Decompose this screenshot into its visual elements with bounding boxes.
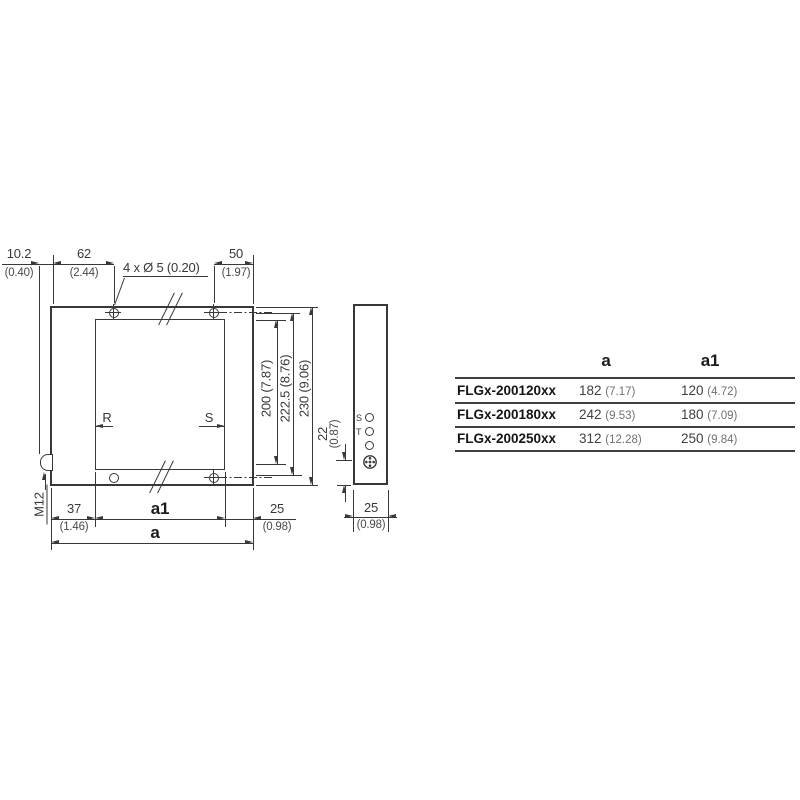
arrowhead xyxy=(309,307,313,315)
extension-line xyxy=(256,475,302,476)
dim-line xyxy=(293,313,294,475)
model-name: FLGx-200180xx xyxy=(457,407,556,422)
dim-left-margin-mm: 37 xyxy=(56,502,92,515)
arrowhead xyxy=(290,313,294,321)
hole-centerline-v xyxy=(213,304,214,320)
dim-offset-in: (0.40) xyxy=(0,267,38,279)
dim-line xyxy=(312,307,313,485)
mounting-hole-top-left xyxy=(109,308,119,318)
receiver-arrowhead xyxy=(95,424,103,428)
value-a1: 120 (4.72) xyxy=(681,383,737,398)
table-rule xyxy=(455,377,795,379)
extension-line xyxy=(114,266,115,303)
extension-line xyxy=(53,255,54,304)
table-header-a1: a1 xyxy=(684,352,736,369)
dim-depth-mm: 25 xyxy=(353,501,389,514)
value-a: 242 (9.53) xyxy=(579,407,635,422)
model-name: FLGx-200250xx xyxy=(457,431,556,446)
dim-total-height: 230 (9.06) xyxy=(298,329,311,449)
dim-connector-offset-mm: 22 xyxy=(316,404,329,464)
value-a1-mm: 180 xyxy=(681,407,704,422)
extension-line xyxy=(39,266,40,454)
m12-label: M12 xyxy=(33,485,48,525)
receiver-label: R xyxy=(99,411,115,424)
arrowhead xyxy=(51,540,59,544)
arrowhead xyxy=(274,320,278,328)
dim-aperture-width: a1 xyxy=(140,500,180,517)
arrowhead xyxy=(245,540,253,544)
sender-label: S xyxy=(201,411,217,424)
value-a: 312 (12.28) xyxy=(579,431,642,446)
value-a-mm: 312 xyxy=(579,431,602,446)
value-a1: 250 (9.84) xyxy=(681,431,737,446)
arrowhead xyxy=(345,514,353,518)
dim-left-margin-in: (1.46) xyxy=(50,521,98,533)
value-a1-mm: 250 xyxy=(681,431,704,446)
arrowhead xyxy=(214,261,222,265)
sender-arrowhead xyxy=(217,424,225,428)
arrowhead xyxy=(87,516,95,520)
value-a1: 180 (7.09) xyxy=(681,407,737,422)
dim-hole-left-in: (2.44) xyxy=(60,267,108,279)
dim-total-width: a xyxy=(139,524,171,541)
dim-hole-pitch: 222.5 (8.76) xyxy=(279,329,292,449)
arrowhead xyxy=(253,516,261,520)
arrowhead xyxy=(274,456,278,464)
arrowhead xyxy=(245,261,253,265)
dim-right-margin-in: (0.98) xyxy=(253,521,301,533)
dim-line xyxy=(51,543,253,544)
dim-right-margin-mm: 25 xyxy=(259,502,295,515)
technical-drawing-page: R S M12 10.2 (0.40) 62 (2.44) 4 x Ø 5 (0… xyxy=(0,0,800,800)
arrowhead xyxy=(290,467,294,475)
value-a1-in: (7.09) xyxy=(707,410,737,422)
dim-depth-in: (0.98) xyxy=(347,519,395,531)
m12-connector-bump xyxy=(40,454,53,471)
model-name: FLGx-200120xx xyxy=(457,383,556,398)
value-a-in: (7.17) xyxy=(605,386,635,398)
value-a1-mm: 120 xyxy=(681,383,704,398)
hole-centerline-v xyxy=(113,304,114,320)
value-a: 182 (7.17) xyxy=(579,383,635,398)
extension-line xyxy=(256,464,286,465)
led-t-label: T xyxy=(356,428,362,437)
m12-connector-face-icon xyxy=(362,454,378,470)
led-s-indicator xyxy=(365,413,374,422)
arrowhead xyxy=(31,261,39,265)
dim-offset-mm: 10.2 xyxy=(0,247,38,260)
value-a1-in: (4.72) xyxy=(707,386,737,398)
hole-centerline-v xyxy=(213,469,214,485)
extension-line xyxy=(214,266,215,303)
holes-callout: 4 x Ø 5 (0.20) xyxy=(123,261,200,274)
dim-line xyxy=(95,519,225,520)
table-rule xyxy=(455,450,795,452)
dim-connector-offset-in: (0.87) xyxy=(329,404,341,464)
mounting-hole-bottom-left xyxy=(109,473,119,483)
arrowhead xyxy=(217,516,225,520)
arrowhead xyxy=(95,516,103,520)
callout-leader-line xyxy=(114,278,125,306)
dim-hole-left-mm: 62 xyxy=(60,247,108,260)
value-a-mm: 242 xyxy=(579,407,602,422)
front-aperture xyxy=(95,319,225,470)
arrowhead xyxy=(388,514,396,518)
extension-line xyxy=(256,485,318,486)
value-a-in: (9.53) xyxy=(605,410,635,422)
value-a1-in: (9.84) xyxy=(707,434,737,446)
m12-leader-arrowhead xyxy=(42,472,46,480)
callout-underline xyxy=(123,276,208,277)
extension-line xyxy=(253,255,254,304)
dim-beam-height: 200 (7.87) xyxy=(260,329,273,449)
arrowhead xyxy=(51,516,59,520)
arrowhead xyxy=(309,477,313,485)
led-t-indicator xyxy=(365,427,374,436)
table-rule xyxy=(455,426,795,428)
led-indicator xyxy=(365,441,374,450)
mounting-hole-bottom-right xyxy=(209,473,219,483)
table-header-a: a xyxy=(580,352,632,369)
arrowhead xyxy=(106,261,114,265)
value-a-mm: 182 xyxy=(579,383,602,398)
extension-line xyxy=(336,460,352,461)
value-a-in: (12.28) xyxy=(605,434,641,446)
arrowhead xyxy=(342,452,346,460)
extension-line xyxy=(256,320,286,321)
arrowhead xyxy=(342,485,346,493)
table-rule xyxy=(455,402,795,404)
led-s-label: S xyxy=(356,414,362,423)
mounting-hole-top-right xyxy=(209,308,219,318)
